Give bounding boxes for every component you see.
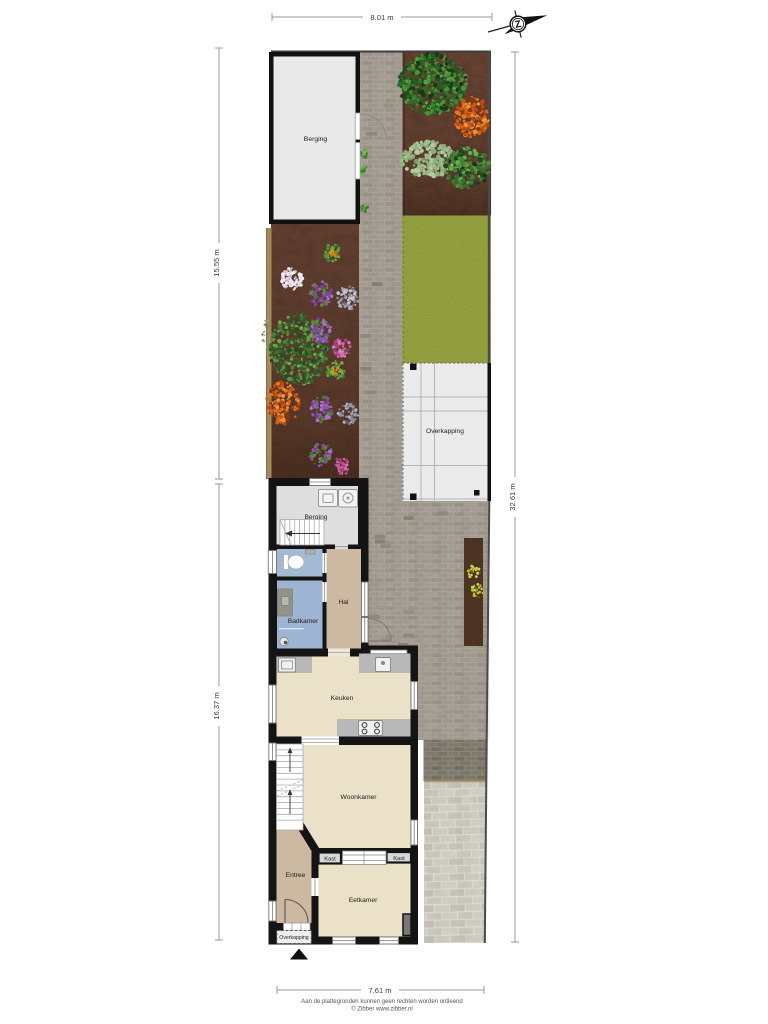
svg-text:Eetkamer: Eetkamer: [349, 897, 378, 904]
svg-text:7.61 m: 7.61 m: [368, 986, 391, 995]
svg-text:Aan de plattegronden kunnen ge: Aan de plattegronden kunnen geen rechten…: [301, 999, 462, 1005]
svg-text:Keuken: Keuken: [331, 695, 354, 702]
svg-text:Woonkamer: Woonkamer: [341, 794, 378, 801]
svg-text:Hal: Hal: [338, 599, 349, 606]
svg-text:16.37 m: 16.37 m: [212, 692, 221, 719]
svg-text:© Zibber www.zibber.nl: © Zibber www.zibber.nl: [351, 1006, 412, 1013]
svg-text:15.55 m: 15.55 m: [212, 249, 221, 276]
svg-text:32.61 m: 32.61 m: [508, 483, 517, 510]
svg-text:Entree: Entree: [286, 872, 306, 879]
svg-text:Kast: Kast: [324, 857, 336, 863]
svg-text:Badkamer: Badkamer: [288, 618, 319, 625]
svg-text:Kast: Kast: [393, 856, 405, 862]
svg-text:Overkapping: Overkapping: [279, 935, 309, 941]
svg-text:Overkapping: Overkapping: [426, 428, 464, 435]
svg-text:8.01 m: 8.01 m: [370, 13, 393, 22]
svg-text:Berging: Berging: [304, 136, 328, 143]
